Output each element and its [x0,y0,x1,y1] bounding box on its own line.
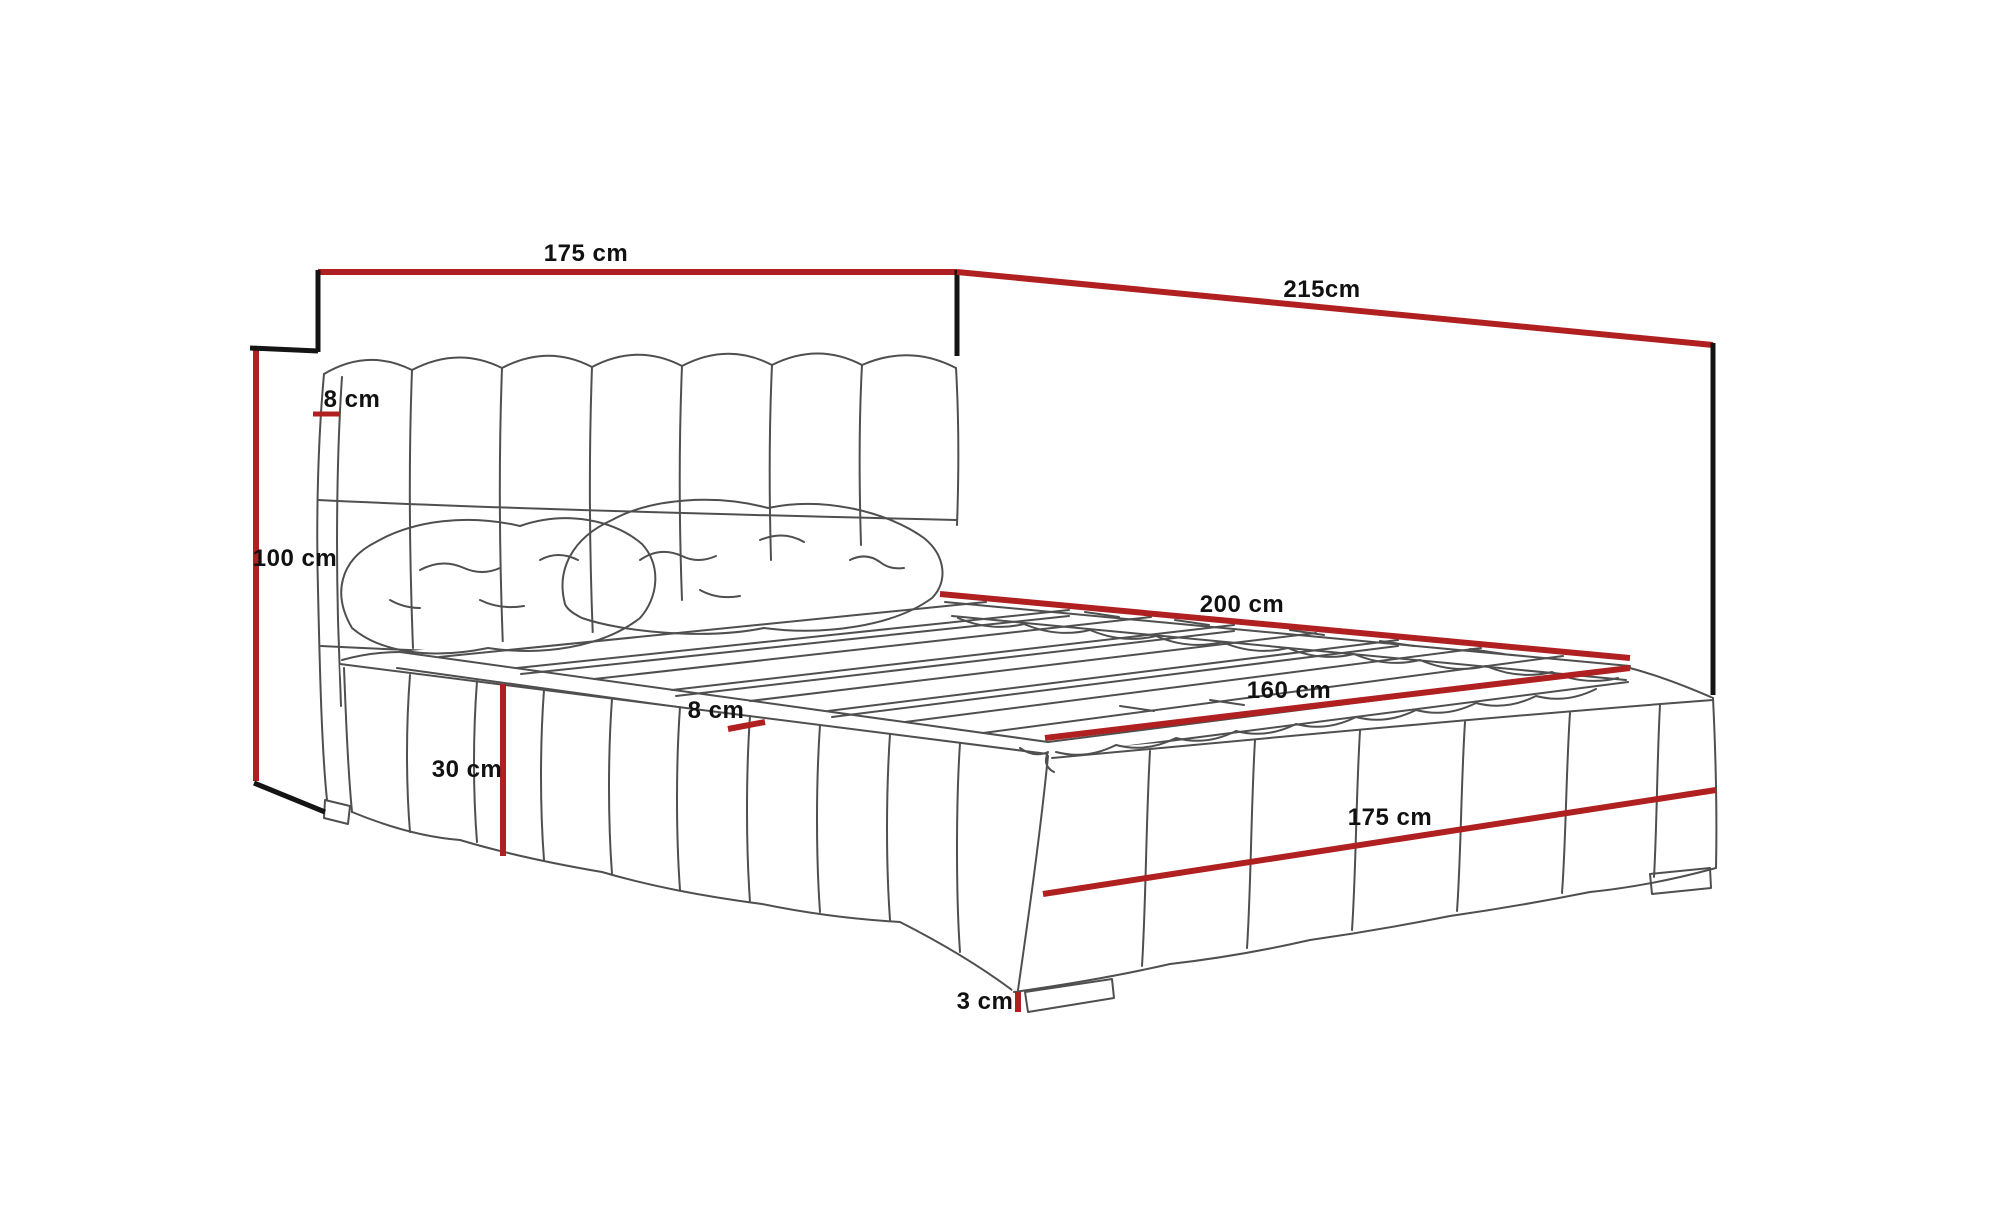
pillow-right-crease-4 [850,556,904,568]
label-overall-length: 215cm [1283,276,1360,303]
diagram-canvas: 175 cm 215cm 100 cm 8 cm 200 cm 160 cm 3… [0,0,2000,1222]
dim-bracket-headboard-height-top [250,348,318,351]
deck-right-corner-wrap [1630,668,1713,698]
label-platform-edge: 8 cm [688,697,745,724]
bed-dimension-diagram: 175 cm 215cm 100 cm 8 cm 200 cm 160 cm 3… [0,0,2000,1222]
label-headboard-thickness: 8 cm [324,386,381,413]
label-foot-height: 3 cm [957,988,1014,1015]
headboard-right-edge [956,368,958,525]
label-headboard-height: 100 cm [253,545,337,572]
headboard-left-inner-seam [337,377,342,706]
deck-left-rim-cap [342,652,400,660]
foot-headboard-left [324,800,350,824]
headboard-channel-4 [680,366,682,600]
label-headboard-width: 175 cm [544,240,628,267]
pillow-left-crease-4 [390,600,420,608]
pillow-left-crease-3 [540,555,578,560]
label-base-width: 175 cm [1348,804,1432,831]
headboard-channel-3 [590,367,593,640]
dim-bracket-headboard-height-bottom [254,783,325,812]
headboard-left-edge [317,374,327,800]
pillow-left-crease-1 [420,563,500,572]
pillow-right-crease-2 [760,535,804,542]
label-mattress-length: 200 cm [1200,591,1284,618]
label-mattress-width: 160 cm [1247,677,1331,704]
pillow-right-crease-3 [700,590,740,597]
label-base-height: 30 cm [432,756,503,783]
headboard-channel-5 [770,365,772,560]
